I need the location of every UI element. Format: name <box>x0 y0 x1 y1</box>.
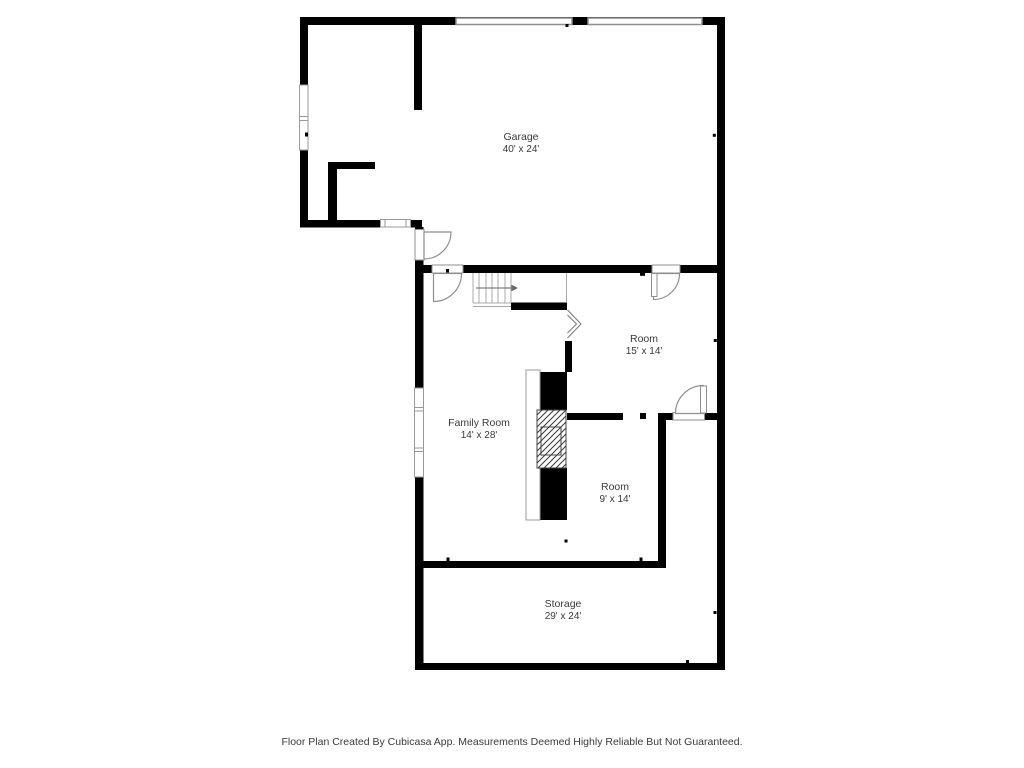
door-room15-bottom-icon <box>673 386 707 421</box>
wall-under-stairs <box>511 303 567 311</box>
fireplace-mass-bottom <box>539 468 567 520</box>
room-name: Room <box>626 334 663 346</box>
door-side-entry-icon <box>415 230 451 261</box>
wall-garage-interior <box>414 17 422 110</box>
wall-garage-nook-horizontal <box>328 162 375 169</box>
floor-plan-canvas: Garage 40' x 24' Room 15' x 14' Family R… <box>0 0 1024 768</box>
window-garage-bottom-icon <box>381 220 411 228</box>
room-name: Storage <box>545 599 582 611</box>
room-dimensions: 14' x 28' <box>448 430 510 442</box>
stairs-direction-arrow <box>476 285 518 291</box>
wall-garage-nook-vertical <box>328 162 337 227</box>
fireplace-hatch-icon <box>537 410 566 468</box>
window-garage-left-icon <box>300 85 309 150</box>
wall-outer-right <box>717 17 725 670</box>
wall-storage-bottom <box>415 663 725 670</box>
window-family-left-icon <box>415 388 424 477</box>
room-label-storage: Storage 29' x 24' <box>545 599 582 622</box>
room-dimensions: 15' x 14' <box>626 346 663 358</box>
room-label-family-room: Family Room 14' x 28' <box>448 418 510 441</box>
room-dimensions: 29' x 24' <box>545 611 582 623</box>
floor-plan-drawing <box>0 0 1024 768</box>
room-name: Room <box>599 482 630 494</box>
stairs-icon <box>473 273 567 307</box>
room-dimensions: 40' x 24' <box>503 144 540 156</box>
opening-chevron-icon <box>568 310 582 338</box>
wall-room9-right <box>658 413 666 568</box>
fireplace-mass-top <box>539 372 567 410</box>
garage-door-right-icon <box>588 18 702 25</box>
room-dimensions: 9' x 14' <box>599 494 630 506</box>
door-room15-icon <box>652 265 681 300</box>
footer-disclaimer: Floor Plan Created By Cubicasa App. Meas… <box>0 736 1024 748</box>
wall-family-bottom <box>415 561 666 568</box>
room-name: Family Room <box>448 418 510 430</box>
wall-opening-stub <box>640 413 646 419</box>
wall-stub-above-fireplace <box>565 341 572 372</box>
garage-door-left-icon <box>456 18 572 25</box>
windows <box>300 85 424 477</box>
room-label-garage: Garage 40' x 24' <box>503 132 540 155</box>
room-label-room9: Room 9' x 14' <box>599 482 630 505</box>
room-label-room15: Room 15' x 14' <box>626 334 663 357</box>
room-name: Garage <box>503 132 540 144</box>
wall-room9-top-left <box>567 413 623 420</box>
